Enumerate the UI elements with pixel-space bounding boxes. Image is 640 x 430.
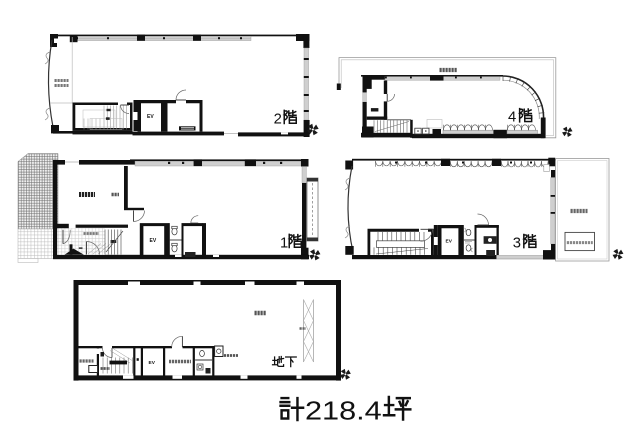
svg-text:3: 3 (513, 235, 521, 251)
svg-text:EV: EV (150, 238, 157, 244)
svg-text:2: 2 (274, 111, 282, 127)
svg-text:4: 4 (508, 110, 516, 126)
svg-text:EV: EV (149, 360, 156, 366)
svg-text:EV: EV (446, 239, 453, 245)
svg-text:EV: EV (147, 114, 154, 120)
svg-text:218.4: 218.4 (305, 397, 382, 426)
svg-text:1: 1 (280, 235, 288, 251)
